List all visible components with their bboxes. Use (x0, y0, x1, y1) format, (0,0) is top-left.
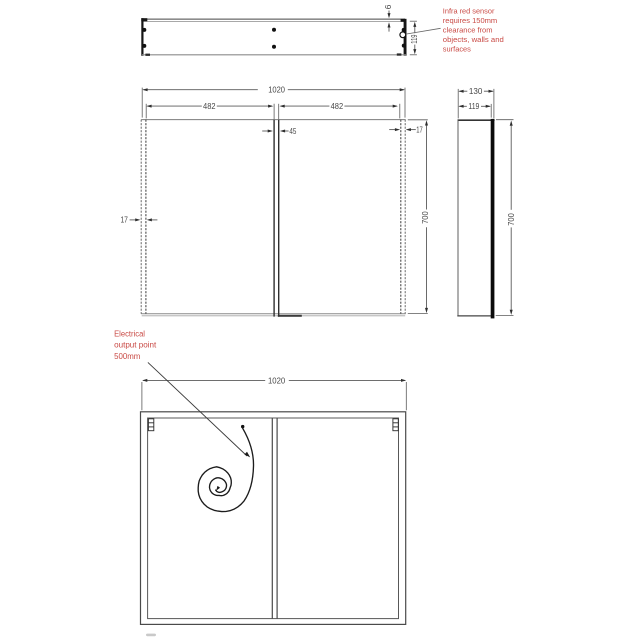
svg-text:482: 482 (331, 101, 344, 111)
svg-text:700: 700 (506, 213, 516, 226)
svg-text:130: 130 (469, 86, 483, 96)
svg-text:objects, walls and: objects, walls and (443, 35, 504, 44)
svg-text:1020: 1020 (268, 375, 286, 385)
svg-text:Infra red sensor: Infra red sensor (443, 7, 495, 16)
svg-text:Electrical: Electrical (114, 330, 145, 339)
svg-text:482: 482 (203, 101, 216, 111)
svg-text:119: 119 (468, 101, 479, 111)
svg-text:clearance from: clearance from (443, 26, 493, 35)
svg-text:119: 119 (409, 34, 419, 43)
svg-text:700: 700 (420, 211, 430, 224)
svg-text:requires 150mm: requires 150mm (443, 16, 497, 25)
svg-text:17: 17 (120, 215, 128, 225)
svg-text:surfaces: surfaces (443, 44, 471, 53)
svg-text:1020: 1020 (268, 85, 285, 95)
svg-text:45: 45 (289, 126, 296, 136)
svg-text:6: 6 (383, 4, 393, 9)
svg-text:500mm: 500mm (114, 352, 141, 361)
svg-text:17: 17 (416, 124, 423, 134)
svg-text:output point: output point (114, 341, 157, 350)
